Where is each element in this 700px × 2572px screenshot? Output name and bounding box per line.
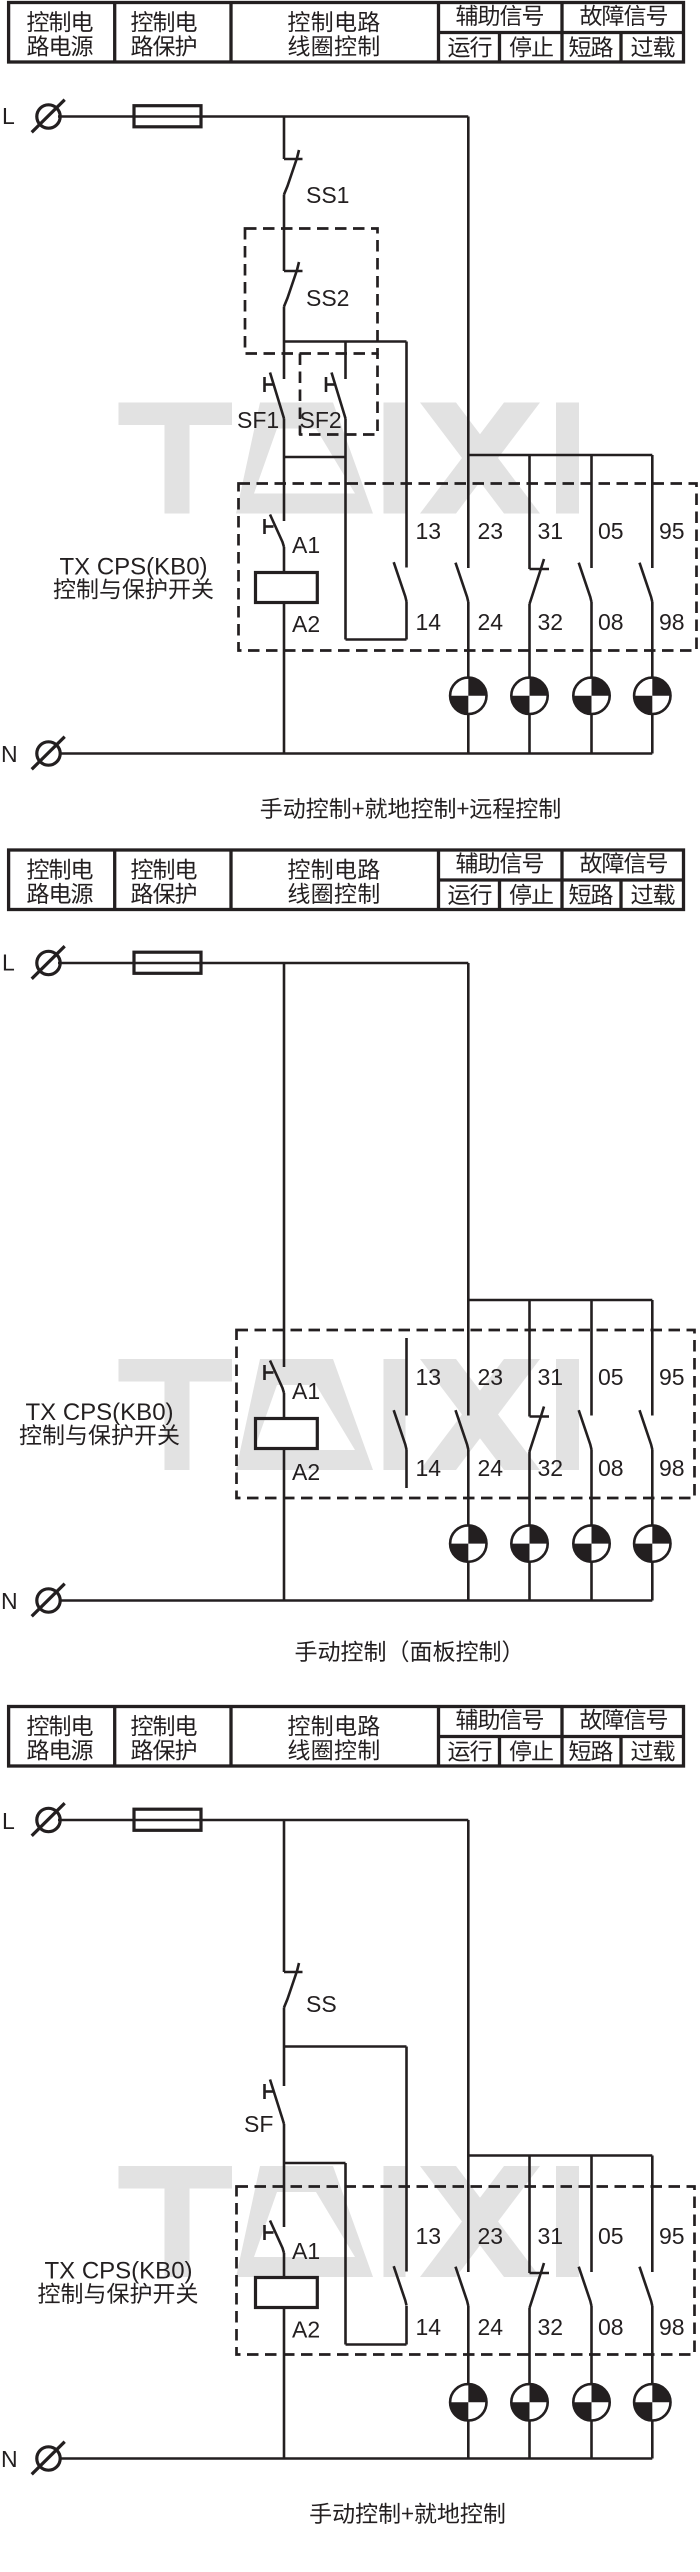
svg-text:24: 24 — [478, 2314, 504, 2340]
svg-text:23: 23 — [478, 1364, 504, 1390]
svg-text:23: 23 — [478, 518, 504, 544]
svg-text:L: L — [2, 950, 15, 976]
svg-text:A1: A1 — [292, 532, 320, 558]
svg-text:N: N — [1, 1588, 18, 1614]
svg-text:23: 23 — [478, 2223, 504, 2249]
svg-text:A2: A2 — [292, 611, 320, 637]
svg-text:98: 98 — [659, 609, 685, 635]
svg-text:L: L — [2, 103, 15, 129]
svg-text:32: 32 — [538, 2314, 564, 2340]
svg-text:14: 14 — [416, 609, 442, 635]
svg-text:31: 31 — [538, 2223, 564, 2249]
svg-text:13: 13 — [416, 1364, 442, 1390]
svg-text:A1: A1 — [292, 2238, 320, 2264]
svg-text:31: 31 — [538, 1364, 564, 1390]
svg-text:14: 14 — [416, 1455, 442, 1481]
svg-text:95: 95 — [659, 2223, 685, 2249]
svg-text:TX CPS(KB0): TX CPS(KB0) — [45, 2258, 193, 2285]
svg-text:24: 24 — [478, 609, 504, 635]
svg-text:98: 98 — [659, 2314, 685, 2340]
svg-text:A2: A2 — [292, 1459, 320, 1485]
svg-text:08: 08 — [598, 2314, 624, 2340]
svg-text:TX CPS(KB0): TX CPS(KB0) — [60, 554, 208, 581]
svg-text:32: 32 — [538, 609, 564, 635]
svg-text:SS1: SS1 — [306, 182, 349, 208]
svg-text:TX CPS(KB0): TX CPS(KB0) — [26, 1399, 174, 1426]
svg-text:SF: SF — [244, 2111, 273, 2137]
svg-text:13: 13 — [416, 2223, 442, 2249]
svg-text:08: 08 — [598, 609, 624, 635]
svg-text:98: 98 — [659, 1455, 685, 1481]
svg-text:N: N — [1, 2446, 18, 2472]
svg-text:24: 24 — [478, 1455, 504, 1481]
svg-text:L: L — [2, 1808, 15, 1834]
svg-text:SS: SS — [306, 1991, 337, 2017]
svg-text:05: 05 — [598, 518, 624, 544]
svg-text:SF2: SF2 — [300, 407, 342, 433]
svg-text:N: N — [1, 741, 18, 767]
svg-text:32: 32 — [538, 1455, 564, 1481]
svg-text:95: 95 — [659, 1364, 685, 1390]
svg-text:SF1: SF1 — [237, 407, 279, 433]
svg-text:31: 31 — [538, 518, 564, 544]
svg-text:95: 95 — [659, 518, 685, 544]
svg-text:05: 05 — [598, 1364, 624, 1390]
svg-text:08: 08 — [598, 1455, 624, 1481]
svg-text:A2: A2 — [292, 2317, 320, 2343]
svg-text:13: 13 — [416, 518, 442, 544]
svg-text:SS2: SS2 — [306, 285, 349, 311]
svg-text:A1: A1 — [292, 1378, 320, 1404]
svg-text:05: 05 — [598, 2223, 624, 2249]
svg-text:14: 14 — [416, 2314, 442, 2340]
